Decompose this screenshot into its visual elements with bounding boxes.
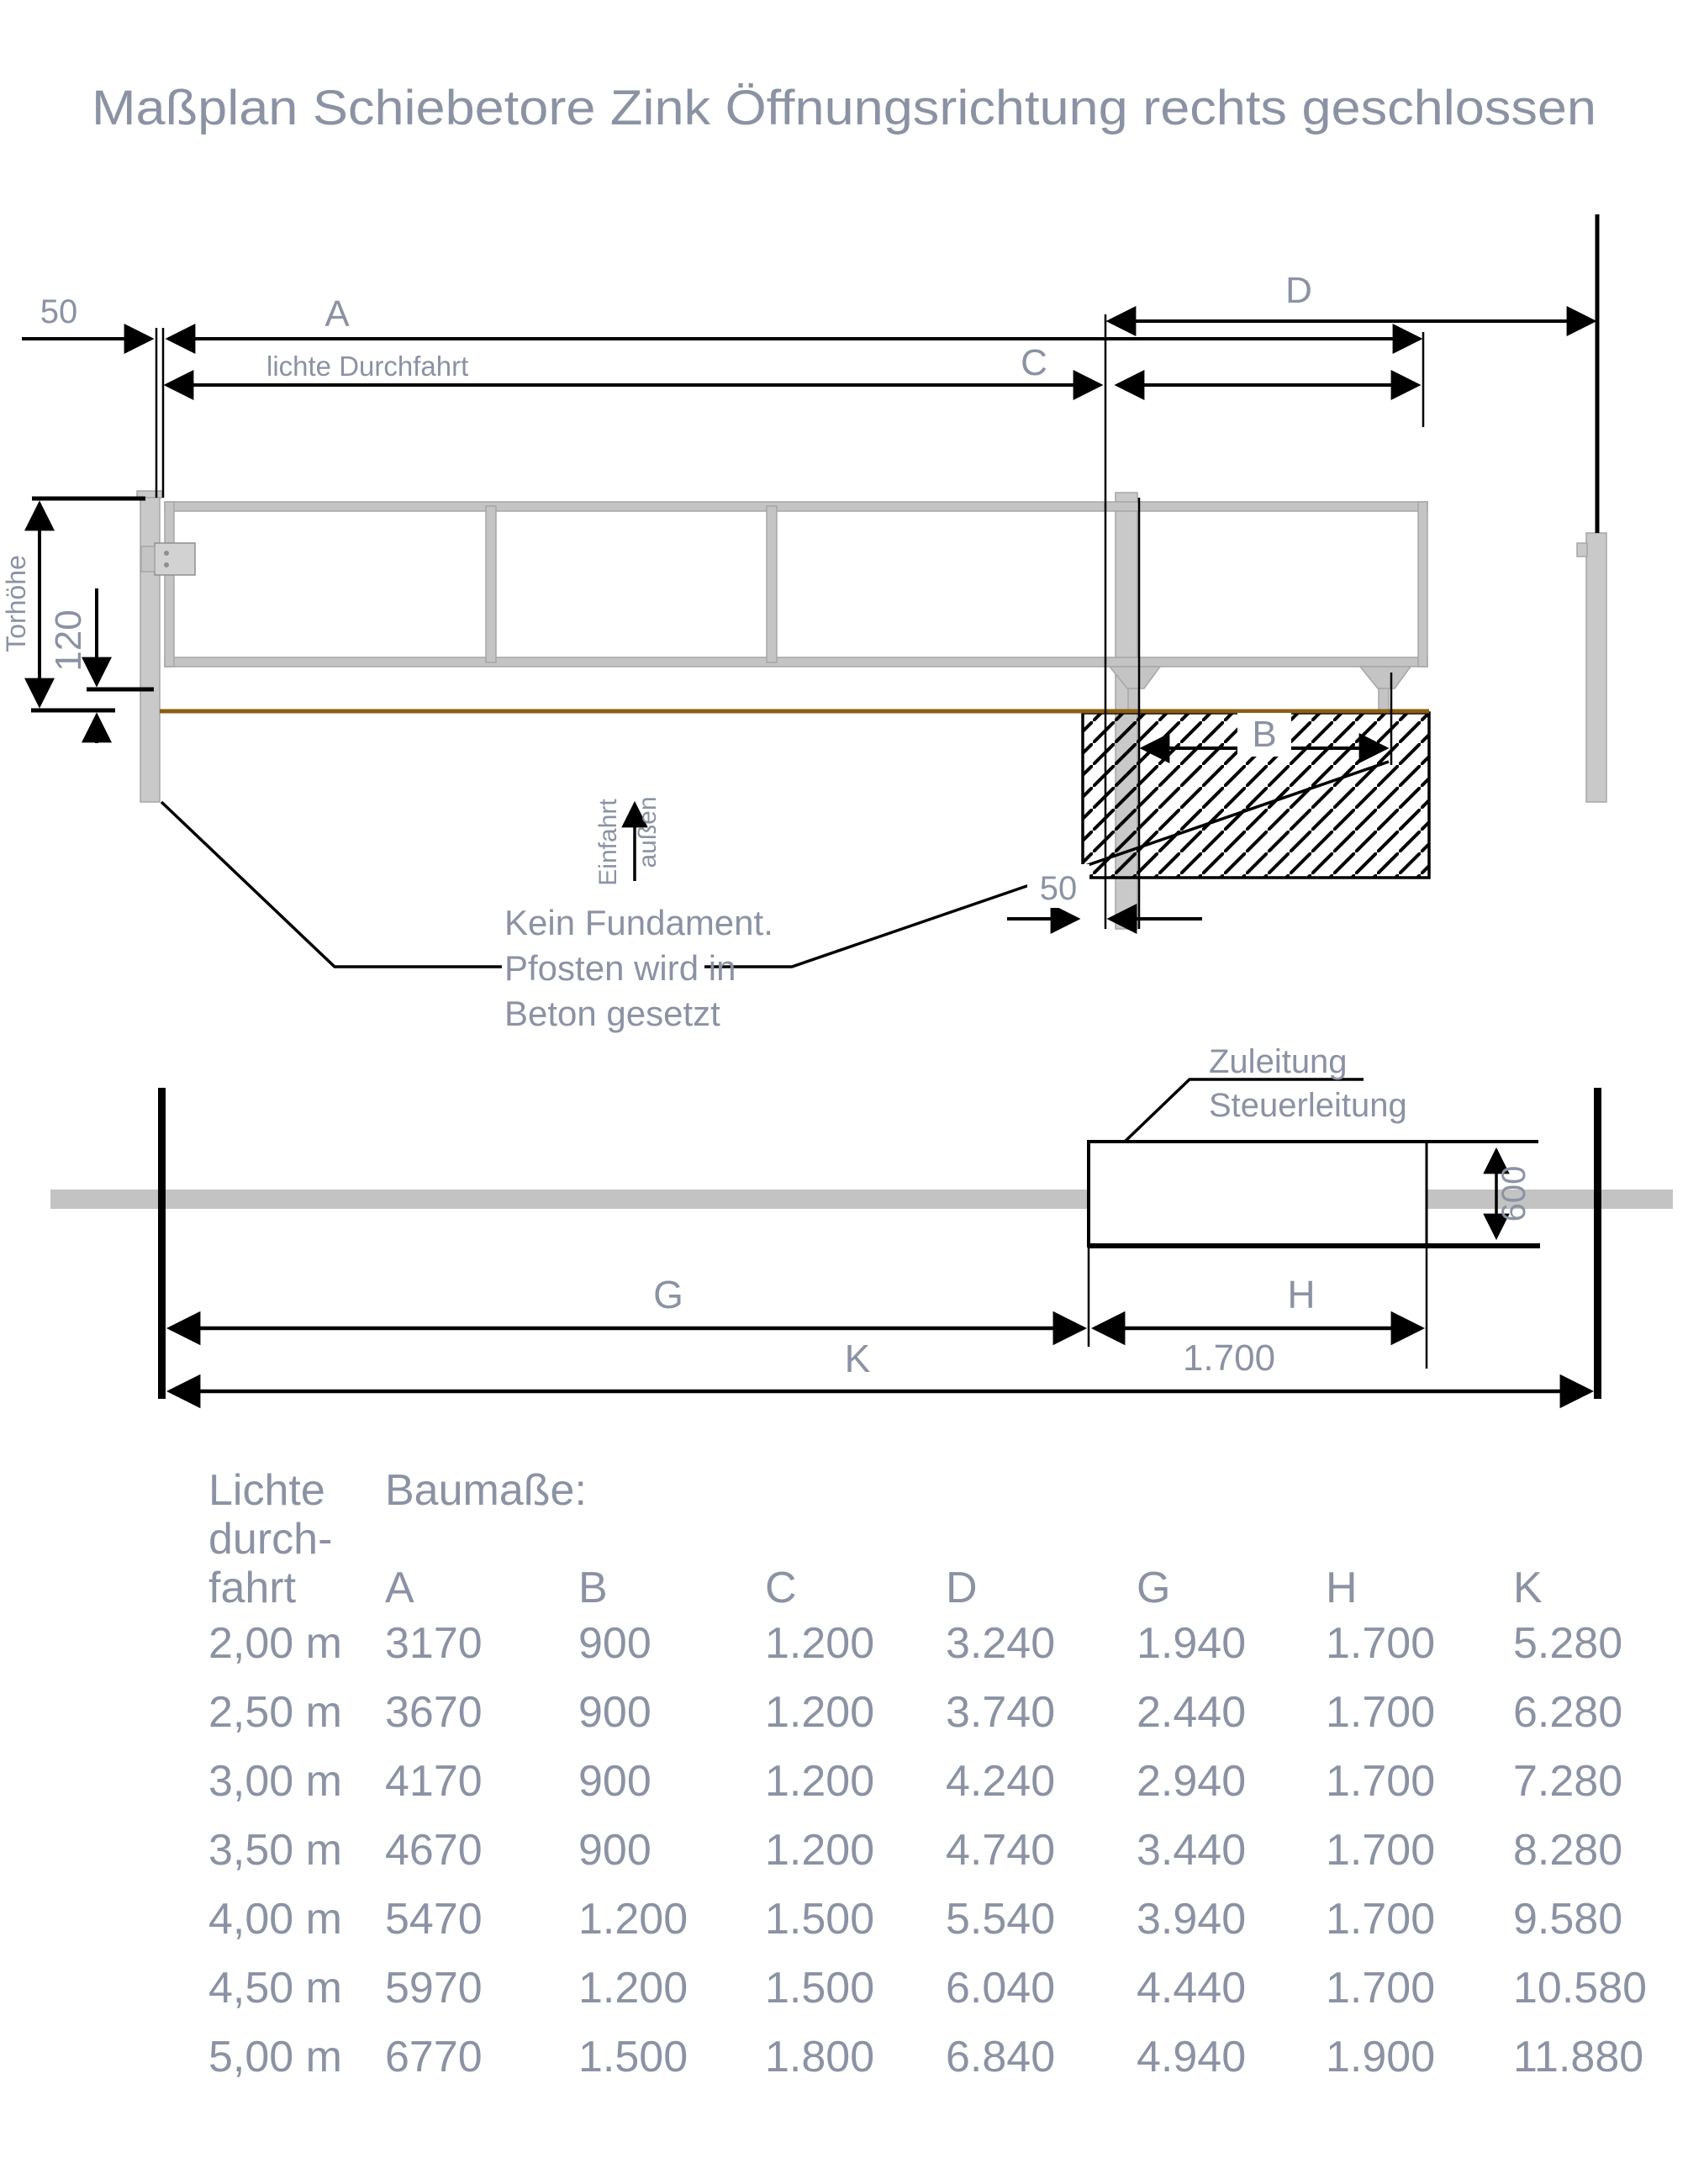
table-col-k: K [1513, 1564, 1543, 1612]
table-cell: 1.200 [765, 1688, 874, 1737]
label-clear-passage: lichte Durchfahrt [266, 351, 468, 382]
label-outside: außen [634, 796, 662, 868]
lock-keyhole-icon [164, 562, 169, 567]
leader-left-post [161, 802, 502, 967]
label-foundation-gap-50: 50 [1040, 870, 1078, 907]
table-cell: 4,50 m [208, 1964, 342, 2013]
table-cell: 5,00 m [208, 2033, 342, 2081]
table-row-header-2: durch- [208, 1515, 332, 1564]
table-cell: 1.700 [1326, 1964, 1435, 2013]
gate-bottom-rail [165, 657, 1427, 667]
table-cell: 3.440 [1137, 1826, 1246, 1875]
table-cell: 4670 [385, 1826, 483, 1875]
table-cell: 11.880 [1513, 2033, 1643, 2081]
table-col-g: G [1137, 1564, 1170, 1612]
table-rows: 2,00 m31709001.2003.2401.9401.7005.2802,… [208, 1619, 1647, 2081]
dimension-plan-page: Maßplan Schiebetore Zink Öffnungsrichtun… [0, 0, 1688, 2184]
table-cell: 900 [578, 1757, 651, 1806]
table-cell: 2,00 m [208, 1619, 342, 1668]
label-dim-c: C [1021, 342, 1047, 383]
table-cell: 3170 [385, 1619, 483, 1668]
label-dim-a: A [324, 293, 350, 335]
table-cell: 1.800 [765, 2033, 874, 2081]
left-post [140, 493, 160, 802]
table-cell: 2.940 [1137, 1757, 1246, 1806]
table-cell: 4170 [385, 1757, 483, 1806]
table-cell: 2.440 [1137, 1688, 1246, 1737]
table-cell: 2,50 m [208, 1688, 342, 1737]
plan-right-post [1594, 1088, 1601, 1399]
table-cell: 1.500 [765, 1964, 874, 2013]
table-cell: 3.740 [946, 1688, 1055, 1737]
table-cell: 6.040 [946, 1964, 1055, 2013]
table-cell: 5.280 [1513, 1619, 1622, 1668]
catch-post [1586, 533, 1606, 802]
label-dim-h: H [1287, 1273, 1315, 1316]
table-cell: 1.500 [578, 2033, 688, 2081]
support-leg-2 [1379, 688, 1389, 711]
table-cell: 3,50 m [208, 1826, 342, 1875]
lock-cylinder-icon [164, 551, 169, 556]
gate-divider-2 [767, 506, 777, 662]
label-dim-b: B [1252, 714, 1276, 755]
table-col-d: D [946, 1564, 978, 1612]
table-cell: 4.940 [1137, 2033, 1246, 2081]
table-row-header-3: fahrt [208, 1564, 297, 1612]
table-col-h: H [1326, 1564, 1358, 1612]
table-row-header-1: Lichte [208, 1466, 325, 1515]
support-bracket-2 [1360, 667, 1411, 688]
table-cell: 3.240 [946, 1619, 1055, 1668]
gate-right-stile [1418, 502, 1427, 667]
label-dim-d: D [1285, 270, 1312, 311]
table-cell: 1.200 [578, 1964, 688, 2013]
fence-band-top-view [50, 1190, 1673, 1209]
label-dim-g: G [653, 1273, 683, 1316]
gate-top-rail [165, 502, 1427, 511]
table-cell: 10.580 [1513, 1964, 1647, 2013]
table-group-header: Baumaße: [385, 1466, 587, 1515]
note-no-foundation-1: Kein Fundament. [504, 903, 773, 942]
label-supply: Zuleitung [1209, 1043, 1348, 1080]
table-cell: 4.440 [1137, 1964, 1246, 2013]
table-cell: 1.200 [765, 1619, 874, 1668]
gate-lock-plate [141, 546, 155, 572]
table-cell: 4.740 [946, 1826, 1055, 1875]
table-cell: 9.580 [1513, 1895, 1622, 1944]
table-cell: 1.900 [1326, 2033, 1435, 2081]
note-no-foundation-3: Beton gesetzt [504, 994, 720, 1033]
table-cell: 1.700 [1326, 1826, 1435, 1875]
table-cell: 3,00 m [208, 1757, 342, 1806]
table-cell: 1.500 [765, 1895, 874, 1944]
label-dim-k: K [845, 1337, 871, 1380]
table-cell: 3670 [385, 1688, 483, 1737]
table-cell: 1.200 [765, 1757, 874, 1806]
table-col-a: A [385, 1564, 414, 1612]
label-gap-50: 50 [40, 293, 78, 330]
dimension-plan-drawing: Maßplan Schiebetore Zink Öffnungsrichtun… [0, 0, 1688, 2184]
plan-left-post [158, 1088, 166, 1399]
table-cell: 1.200 [578, 1895, 688, 1944]
table-cell: 3.940 [1137, 1895, 1246, 1944]
table-cell: 7.280 [1513, 1757, 1622, 1806]
support-leg-1 [1128, 688, 1138, 711]
table-cell: 1.700 [1326, 1688, 1435, 1737]
catch-post-hook [1577, 543, 1587, 557]
table-cell: 900 [578, 1688, 651, 1737]
table-cell: 8.280 [1513, 1826, 1622, 1875]
table-cell: 900 [578, 1826, 651, 1875]
label-600: 600 [1495, 1166, 1532, 1222]
label-control: Steuerleitung [1209, 1087, 1407, 1124]
gate-divider-1 [486, 506, 496, 662]
table-cell: 4.240 [946, 1757, 1055, 1806]
table-cell: 1.700 [1326, 1895, 1435, 1944]
table-cell: 900 [578, 1619, 651, 1668]
label-gap-120: 120 [48, 609, 89, 671]
table-col-b: B [578, 1564, 608, 1612]
table-cell: 6.840 [946, 2033, 1055, 2081]
table-col-c: C [765, 1564, 797, 1612]
label-gate-height: Torhöhe [1, 555, 31, 652]
gate-left-stile [165, 502, 174, 667]
table-cell: 1.700 [1326, 1619, 1435, 1668]
table-cell: 5970 [385, 1964, 483, 2013]
gate-lock-body [155, 543, 195, 575]
table-cell: 5.540 [946, 1895, 1055, 1944]
table-cell: 1.940 [1137, 1619, 1246, 1668]
table-cell: 4,00 m [208, 1895, 342, 1944]
note-no-foundation-2: Pfosten wird in [504, 948, 736, 988]
table-cell: 1.700 [1326, 1757, 1435, 1806]
label-h-value: 1.700 [1183, 1337, 1275, 1379]
plan-foundation-bg [1089, 1142, 1427, 1246]
table-cell: 1.200 [765, 1826, 874, 1875]
table-cell: 6770 [385, 2033, 483, 2081]
dimension-table: Lichte durch- fahrt Baumaße: A B C D G H… [208, 1466, 1647, 2081]
page-title: Maßplan Schiebetore Zink Öffnungsrichtun… [92, 81, 1596, 135]
label-entry: Einfahrt [594, 799, 622, 886]
table-cell: 6.280 [1513, 1688, 1622, 1737]
table-cell: 5470 [385, 1895, 483, 1944]
